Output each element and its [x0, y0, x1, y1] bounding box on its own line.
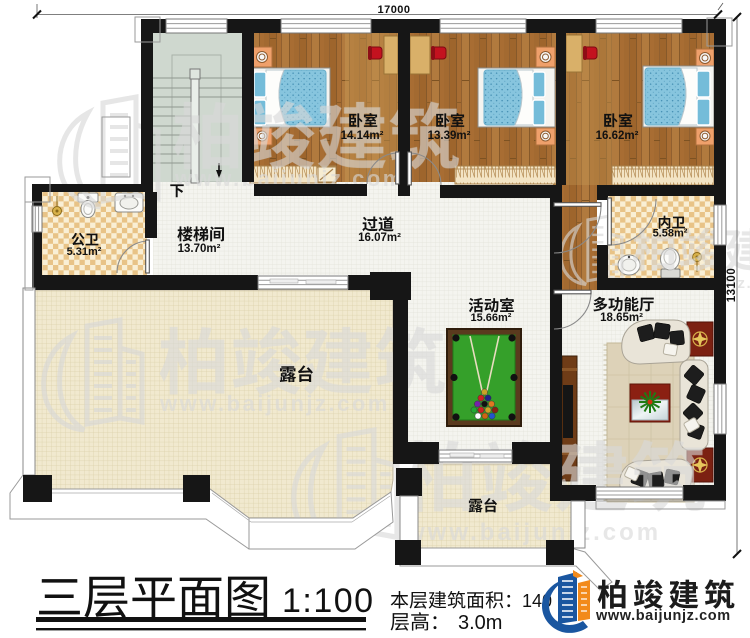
svg-text:5.58m²: 5.58m² — [653, 228, 688, 240]
svg-text:13.70m²: 13.70m² — [178, 243, 221, 255]
svg-text:www.baijunjz.com: www.baijunjz.com — [595, 608, 731, 624]
svg-text:16.07m²: 16.07m² — [358, 232, 401, 244]
svg-text:1:100: 1:100 — [282, 582, 375, 620]
svg-text:16.62m²: 16.62m² — [596, 130, 639, 142]
svg-text:18.65m²: 18.65m² — [600, 312, 643, 324]
svg-text:13100: 13100 — [726, 268, 738, 302]
svg-text:17000: 17000 — [377, 4, 410, 16]
svg-text:14.14m²: 14.14m² — [341, 130, 384, 142]
svg-text:13.39m²: 13.39m² — [428, 130, 471, 142]
svg-text:15.66m²: 15.66m² — [471, 312, 512, 324]
svg-text:www.baijunjz.com: www.baijunjz.com — [405, 519, 661, 546]
svg-text:5.31m²: 5.31m² — [67, 246, 102, 258]
svg-text:3.0m: 3.0m — [458, 612, 502, 634]
svg-text:www.baijunjz.com: www.baijunjz.com — [159, 391, 390, 416]
